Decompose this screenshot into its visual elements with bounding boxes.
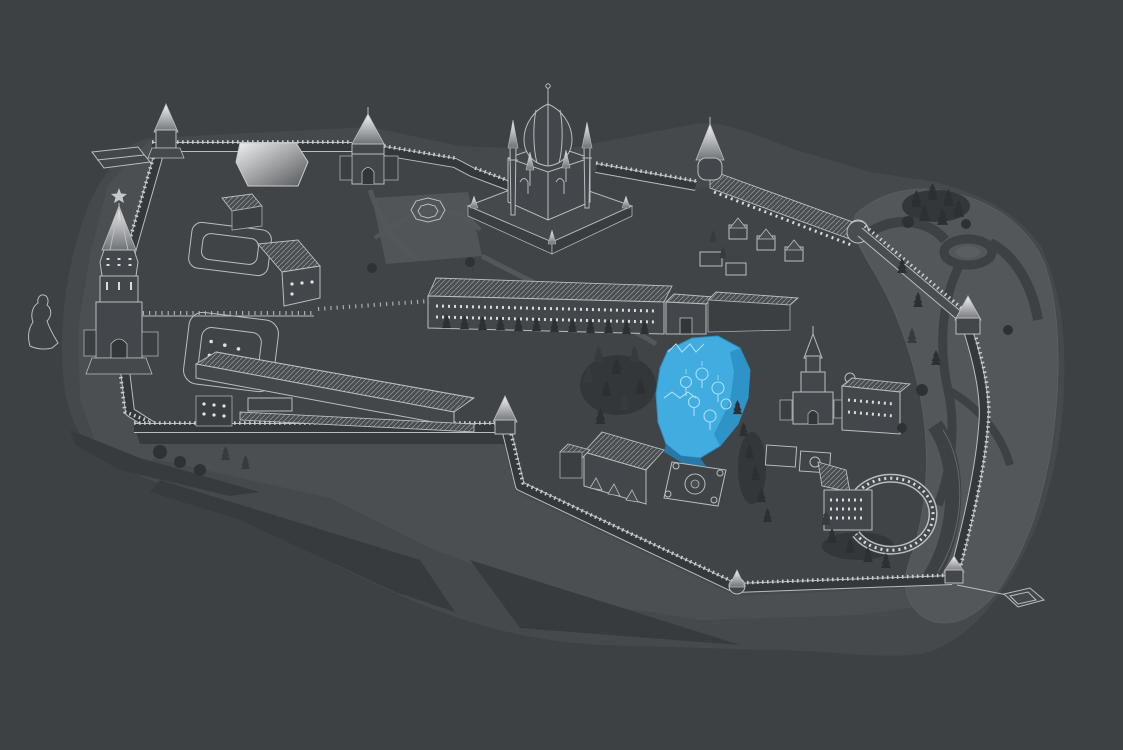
northwest-bastion [236,143,308,186]
map-canvas [0,0,1123,750]
